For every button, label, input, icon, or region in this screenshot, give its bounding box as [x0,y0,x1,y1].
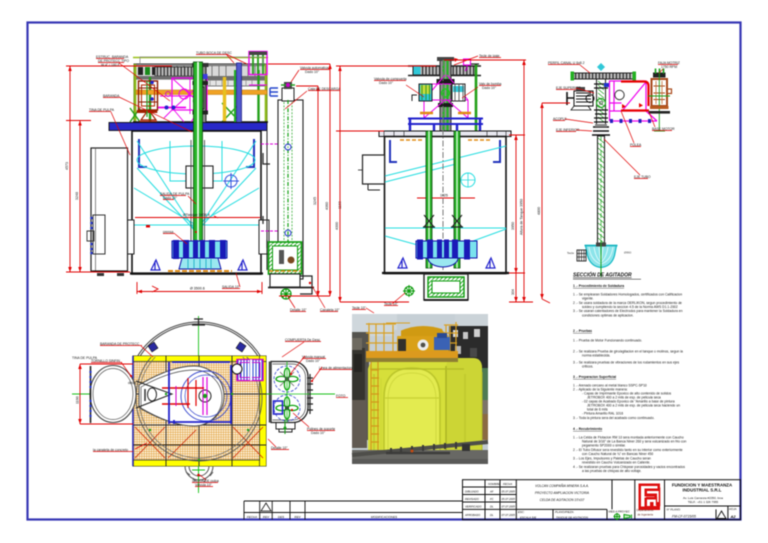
svg-text:4 .- Recubrimiento: 4 .- Recubrimiento [573,427,602,431]
svg-text:FECHA: FECHA [247,515,257,519]
svg-text:07.07.2005: 07.07.2005 [502,513,516,517]
svg-text:FECHA: FECHA [503,482,512,486]
svg-text:TELF.: +51 1 326 7955: TELF.: +51 1 326 7955 [688,500,719,504]
svg-text:pegamento SP2000 o similar.: pegamento SP2000 o similar. [582,444,626,448]
svg-text:detall: detall [128,381,136,385]
svg-text:3 .- Toda la pintura sera: 3 .- Toda la pintura sera del acabado co… [573,416,655,420]
svg-text:INDUSTRIAL S.R.L: INDUSTRIAL S.R.L [683,488,722,493]
svg-text:ESCALA S/E: ESCALA S/E [520,516,536,520]
svg-text:4573: 4573 [65,162,69,170]
svg-text:05.07.2005: 05.07.2005 [502,490,516,494]
svg-text:Ø860: Ø860 [624,251,632,255]
svg-text:MODIFICACIONES: MODIFICACIONES [371,515,397,519]
svg-text:Ø 3500.6: Ø 3500.6 [190,287,205,291]
svg-text:Dado 10": Dado 10" [482,86,497,90]
svg-text:05.07.2005: 05.07.2005 [502,497,516,501]
svg-text:3245: 3245 [313,197,317,205]
svg-text:304: 304 [511,289,515,295]
svg-text:SECCIÓN DE AGITADOR: SECCIÓN DE AGITADOR [573,272,632,279]
svg-text:APROBADO: APROBADO [464,513,481,517]
svg-text:3950: 3950 [511,222,515,230]
svg-text:DL: DL [490,513,494,517]
svg-text:PROYECTO AMPLIACION VICTORIA: PROYECTO AMPLIACION VICTORIA [535,491,589,495]
svg-text:3 .- Se usaran calentadores: 3 .- Se usaran calentadores de Electrodo… [573,309,683,313]
svg-text:4800: 4800 [537,207,541,215]
svg-text:FC: FC [490,497,494,501]
svg-text:HOJA: HOJA [729,507,737,511]
svg-text:1 .- Prueba de Motor Funci: 1 .- Prueba de Motor Funcionando continu… [573,339,642,343]
svg-text:3 .- Preparacion Superficial: 3 .- Preparacion Superficial [573,375,616,379]
svg-text:REV: REV [294,515,301,519]
svg-text:A2: A2 [730,514,737,519]
svg-text:ESC:: ESC: [518,510,525,514]
svg-text:TANQUE DE AGITACION: TANQUE DE AGITACION [556,516,589,520]
svg-text:NOMBRE: NOMBRE [488,482,500,486]
svg-text:Tecle: Tecle [567,251,574,255]
svg-text:revestido en Caucho Vulcani: revestido en Caucho Vulcanizado en Calie… [582,461,651,465]
svg-text:a las pruebas de chispas: a las pruebas de chispas de alto voltaje… [582,469,642,473]
svg-text:4060: 4060 [325,202,329,210]
svg-text:3248: 3248 [75,192,79,200]
svg-text:N° PLANO:: N° PLANO: [667,508,681,512]
svg-text:W 4" / 180 F: W 4" / 180 F [101,63,120,67]
svg-text:Dado 10": Dado 10" [305,70,320,74]
svg-text:ØTanque 3408.4: ØTanque 3408.4 [183,213,210,217]
svg-text:- Pintura Amarillo RAL 101: - Pintura Amarillo RAL 1016 [582,412,623,416]
svg-text:07.07.2005: 07.07.2005 [502,505,516,509]
svg-text:Dado 10": Dado 10" [306,359,321,363]
svg-text:1025: 1025 [440,194,448,198]
svg-text:Dado 10": Dado 10" [379,81,394,85]
svg-text:condiciones optimas de apli: condiciones optimas de aplicacion. [582,314,634,318]
svg-text:REV: REV [263,515,270,519]
svg-text:1190: 1190 [76,396,80,404]
svg-text:DIBUJADO: DIBUJADO [465,490,479,494]
svg-text:1750 RPM: 1750 RPM [661,65,677,69]
svg-text:Departamento: Departamento [637,508,655,512]
svg-text:DL: DL [490,505,494,509]
svg-text:DES: DES [278,515,284,519]
svg-text:vigente.: vigente. [582,297,594,301]
svg-text:con Caucho Natural de ¾": con Caucho Natural de ¾" en Bancas Niner… [582,452,653,456]
svg-text:4000: 4000 [335,222,339,230]
svg-text:2 .- Pruebas: 2 .- Pruebas [573,329,592,333]
svg-text:PLANO/PIEZA:: PLANO/PIEZA: [555,510,574,514]
svg-text:criticos.: criticos. [582,365,593,369]
svg-text:1 .- Procedimiento de Soldadur: 1 .- Procedimiento de Soldadura [573,284,624,288]
svg-text:MED A PROYEC: MED A PROYEC [609,510,631,514]
svg-text:FM-CF-0715/05: FM-CF-0715/05 [672,515,696,519]
svg-text:VOLCAN COMPAÑIA MINERA S.A.A.: VOLCAN COMPAÑIA MINERA S.A.A. [535,483,589,488]
svg-text:Dado 10": Dado 10" [311,431,326,435]
svg-text:AF: AF [489,490,494,494]
svg-text:de Ingenieria: de Ingenieria [638,513,654,517]
svg-text:norma establecida.: norma establecida. [582,354,610,358]
svg-text:CELDA DE AGITACION 10'x10': CELDA DE AGITACION 10'x10' [540,498,585,502]
svg-text:VERIFICADO: VERIFICADO [465,505,482,509]
svg-text:REVISADO: REVISADO [465,497,480,501]
svg-text:Altura de Tanque 3950: Altura de Tanque 3950 [520,199,524,235]
